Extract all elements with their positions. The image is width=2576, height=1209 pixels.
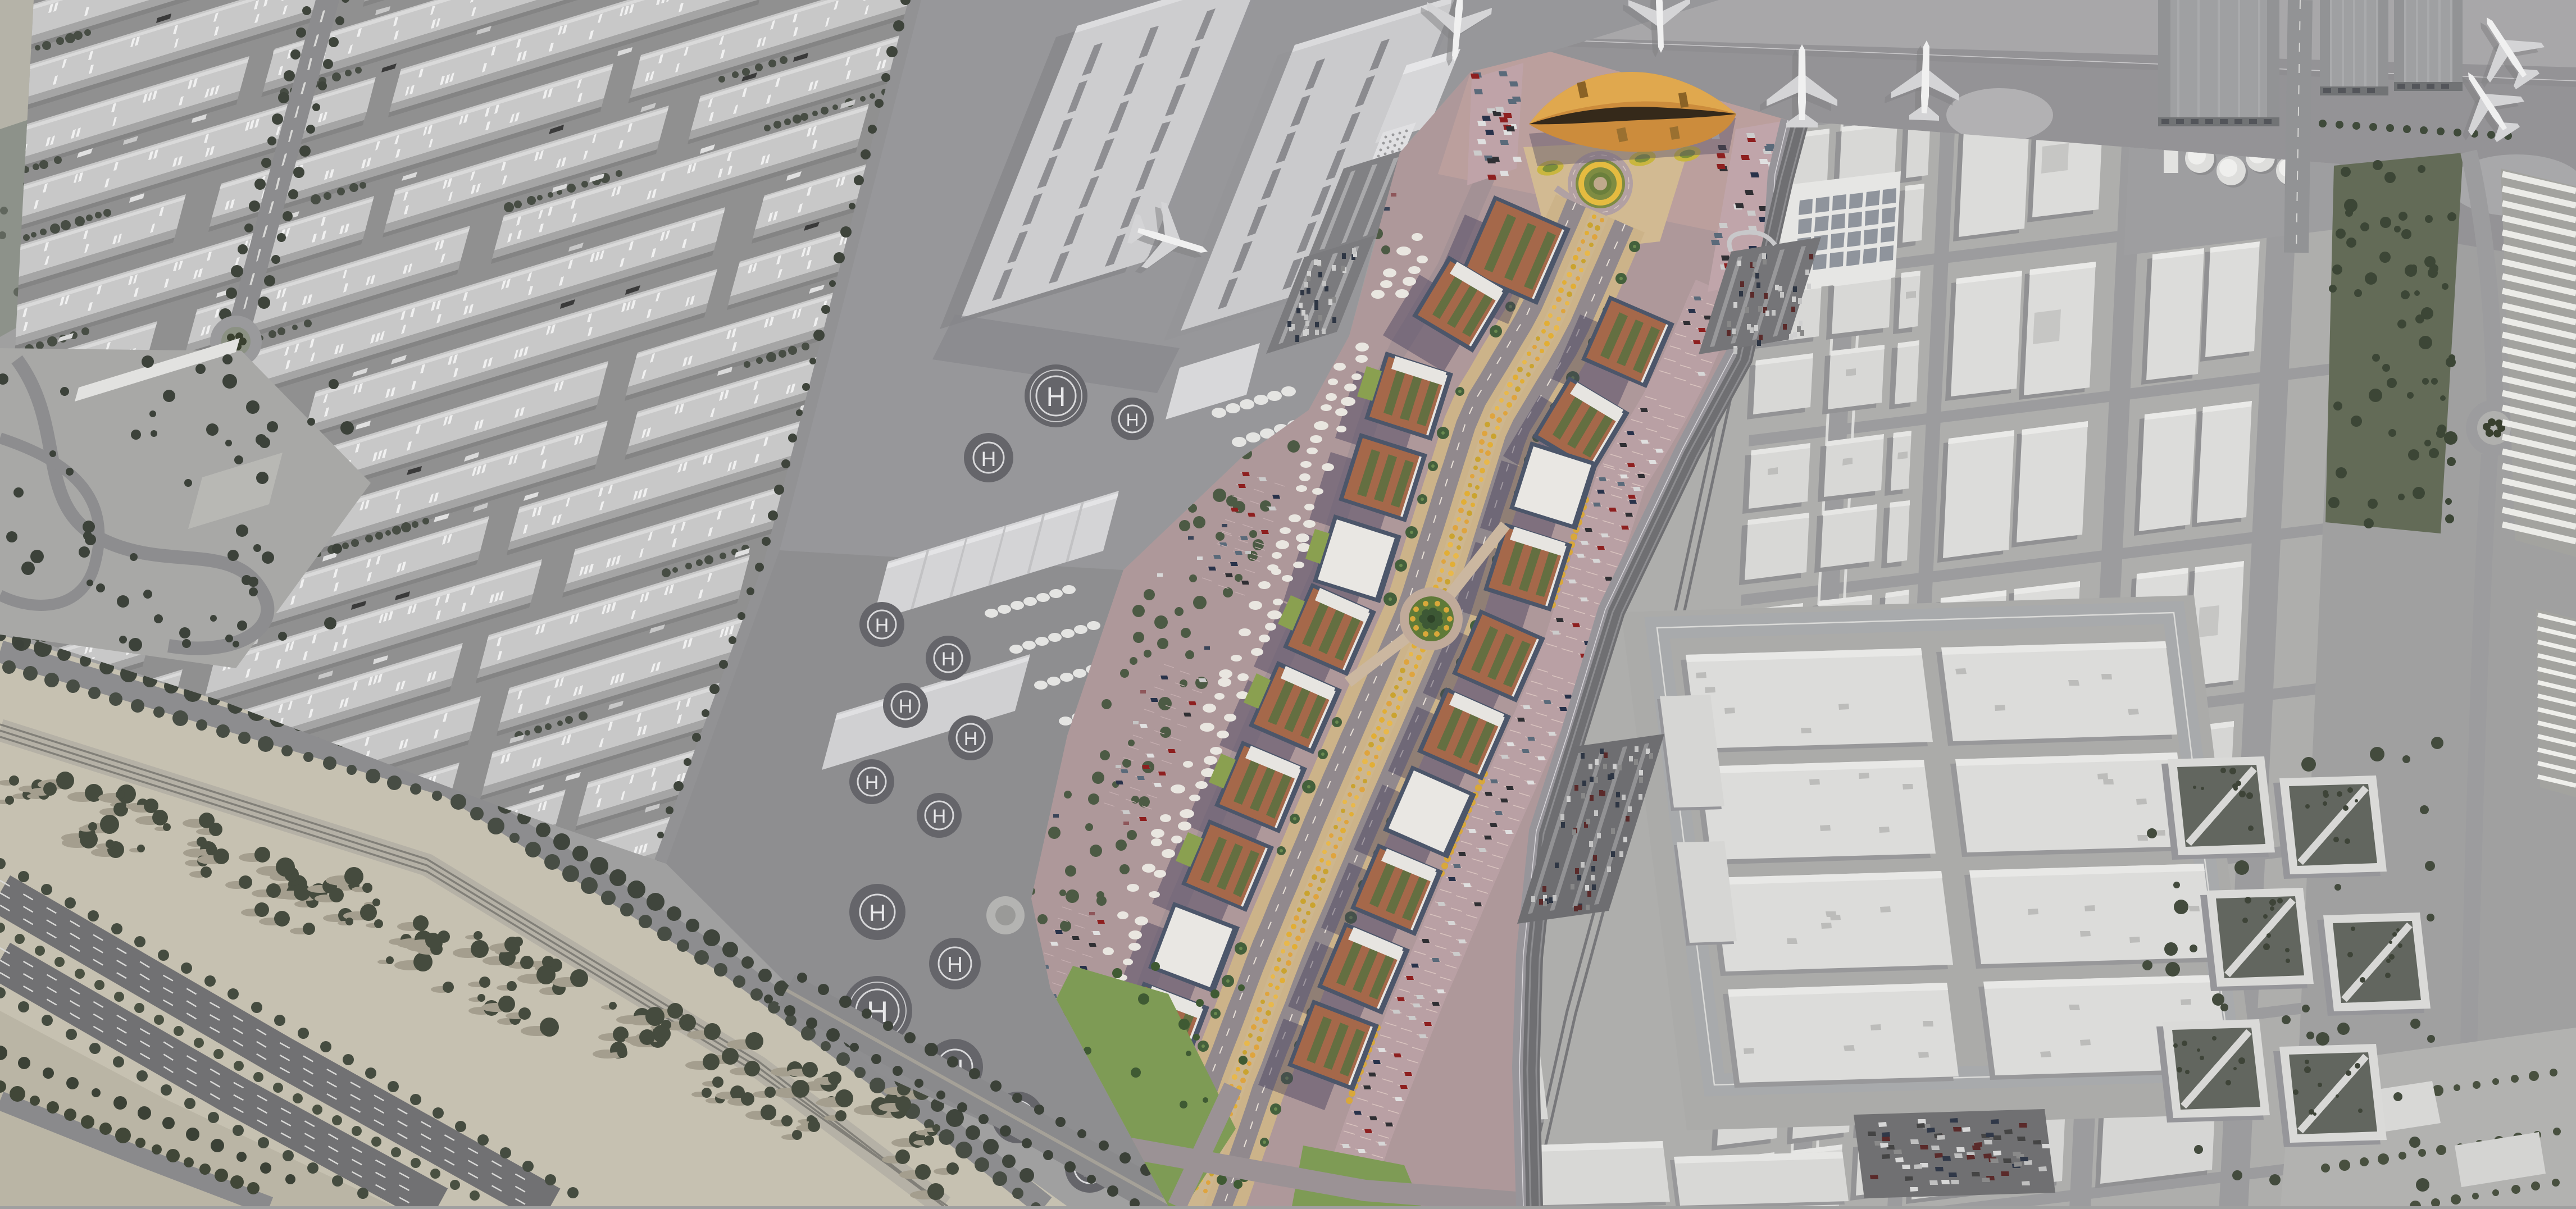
svg-text:H: H xyxy=(865,772,879,793)
svg-text:H: H xyxy=(947,953,963,977)
svg-text:H: H xyxy=(932,806,946,827)
svg-text:H: H xyxy=(1046,382,1066,412)
svg-text:H: H xyxy=(964,728,978,750)
svg-text:H: H xyxy=(1126,410,1139,430)
svg-text:H: H xyxy=(941,649,955,670)
svg-text:H: H xyxy=(899,696,913,717)
svg-text:H: H xyxy=(869,900,886,926)
svg-text:H: H xyxy=(981,448,996,471)
svg-text:H: H xyxy=(875,615,889,636)
